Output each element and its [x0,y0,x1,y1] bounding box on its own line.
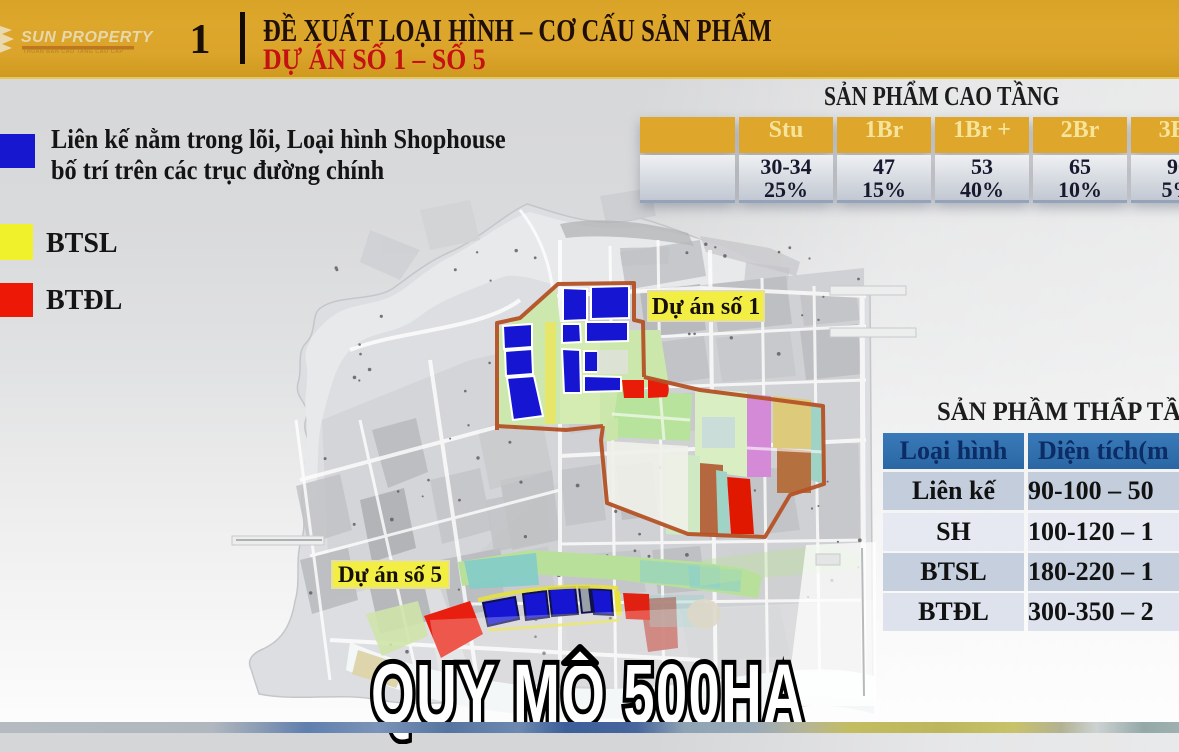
svg-text:Dự án số 1: Dự án số 1 [652,294,760,320]
svg-text:Dự án số 5: Dự án số 5 [338,562,442,587]
